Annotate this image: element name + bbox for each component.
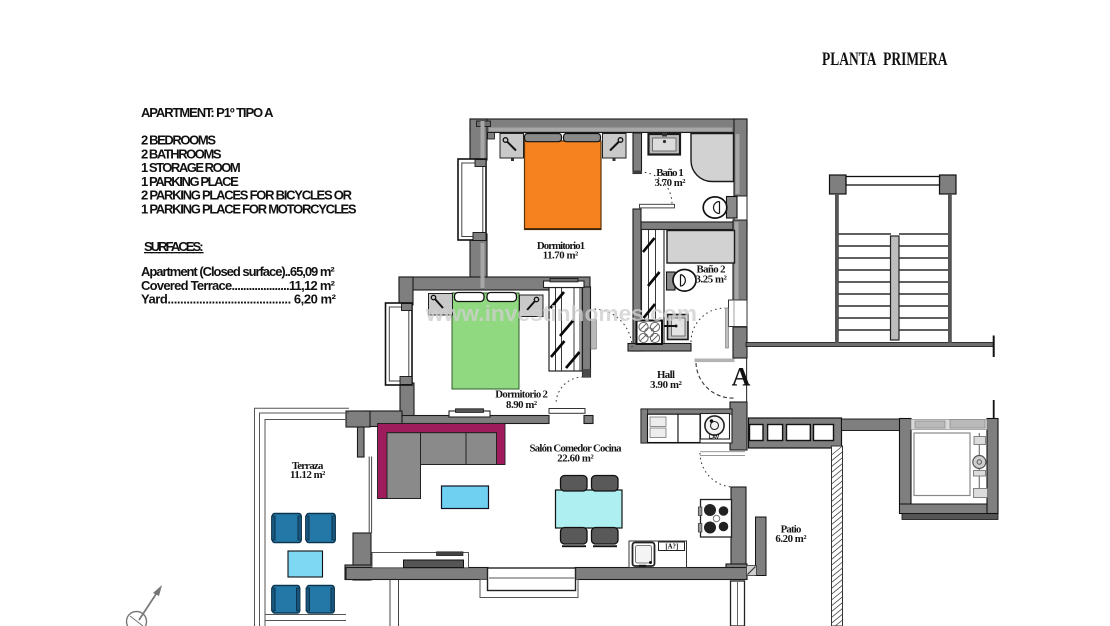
svg-text:11.70 m²: 11.70 m² [543, 250, 579, 262]
svg-text:[A?]: [A?] [665, 544, 678, 551]
svg-text:3.25 m²: 3.25 m² [696, 273, 727, 285]
svg-text:8.90 m²: 8.90 m² [506, 399, 537, 411]
svg-text:1 PARKING PLACE: 1 PARKING PLACE [141, 174, 239, 189]
svg-text:2 PARKING PLACES FOR BICYCLES: 2 PARKING PLACES FOR BICYCLES OR [141, 188, 353, 203]
svg-text:2 BATHROOMS: 2 BATHROOMS [141, 146, 222, 161]
svg-text:Covered Terrace...............: Covered Terrace....................11,12… [141, 278, 336, 293]
svg-text:1 PARKING PLACE FOR MOTORCYCLE: 1 PARKING PLACE FOR MOTORCYCLES [141, 202, 357, 217]
svg-text:11.12 m²: 11.12 m² [290, 469, 325, 481]
svg-text:APARTMENT: P1º TIPO A: APARTMENT: P1º TIPO A [141, 105, 274, 120]
svg-text:1 STORAGE ROOM: 1 STORAGE ROOM [141, 160, 241, 175]
svg-text:2 BEDROOMS: 2 BEDROOMS [141, 133, 216, 148]
svg-text:SURFACES:: SURFACES: [144, 239, 204, 254]
svg-text:Apartment (Closed surface)..65: Apartment (Closed surface)..65,09 m² [141, 264, 335, 279]
svg-text:A: A [732, 363, 751, 392]
svg-text:22.60 m²: 22.60 m² [557, 453, 594, 465]
svg-text:Yard..........................: Yard....................................… [141, 292, 337, 307]
svg-text:3.90 m²: 3.90 m² [650, 379, 682, 391]
svg-text:PLANTA PRIMERA: PLANTA PRIMERA [822, 49, 948, 70]
svg-text:3.70 m²: 3.70 m² [655, 177, 686, 189]
svg-text:6.20 m²: 6.20 m² [775, 533, 806, 545]
svg-text:LAV: LAV [709, 435, 720, 441]
svg-text:www.investinhomes.com: www.investinhomes.com [425, 301, 697, 326]
